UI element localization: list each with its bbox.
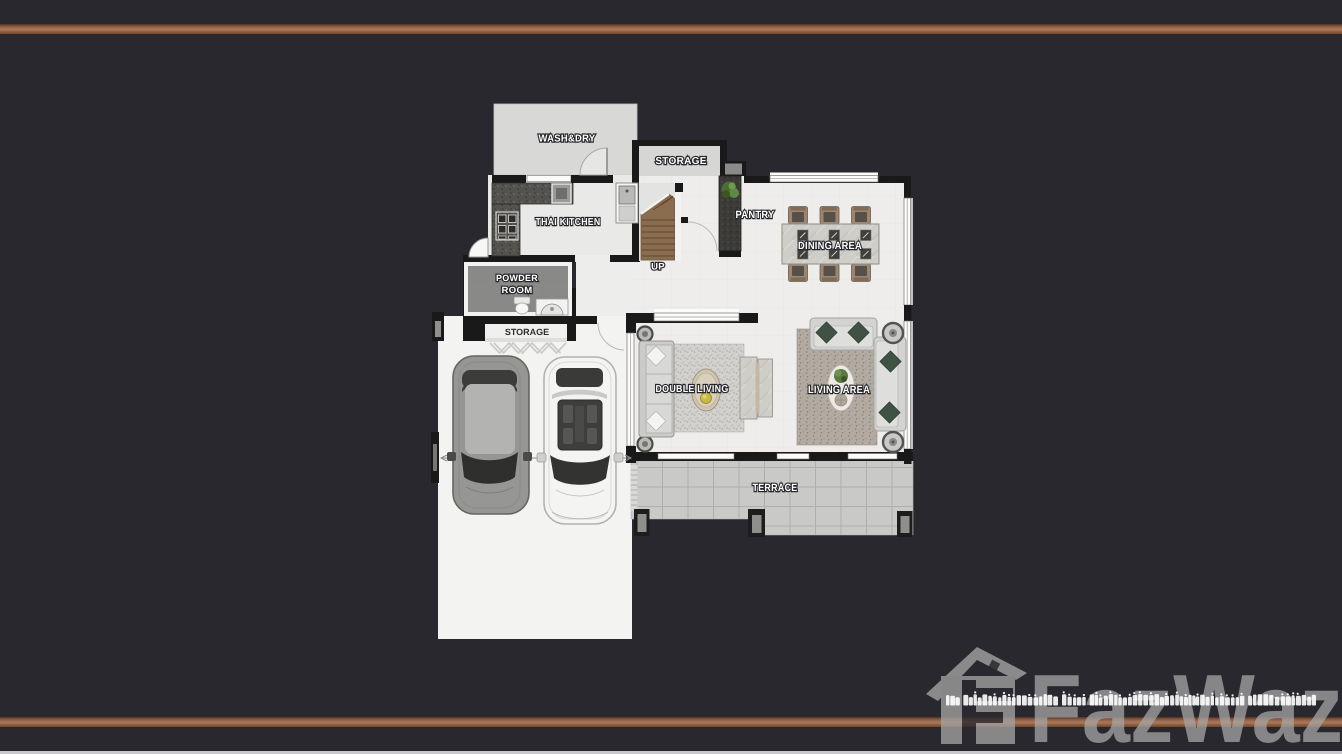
svg-text:TERRACE: TERRACE — [753, 482, 798, 494]
svg-text:STORAGE: STORAGE — [505, 327, 549, 337]
svg-text:DINING AREA: DINING AREA — [798, 240, 862, 252]
svg-text:UP: UP — [651, 262, 665, 273]
svg-text:ROOM: ROOM — [502, 285, 533, 295]
svg-text:DOUBLE LIVING: DOUBLE LIVING — [656, 384, 729, 395]
svg-text:LIVING AREA: LIVING AREA — [808, 384, 870, 396]
svg-text:STORAGE: STORAGE — [655, 156, 706, 167]
svg-text:POWDER: POWDER — [496, 273, 538, 283]
svg-text:THAI KITCHEN: THAI KITCHEN — [536, 217, 601, 228]
svg-text:PANTRY: PANTRY — [736, 209, 775, 221]
svg-text:WASH&DRY: WASH&DRY — [539, 134, 596, 145]
